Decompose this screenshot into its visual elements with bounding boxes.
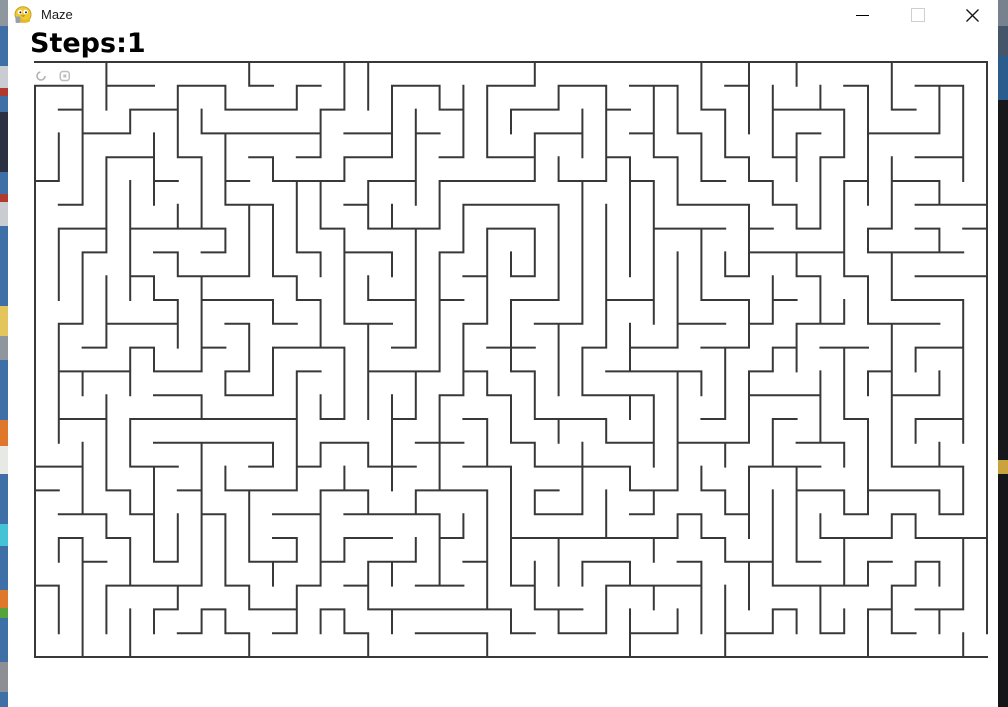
desktop-strip-segment xyxy=(998,460,1008,474)
desktop-strip-segment xyxy=(0,112,8,172)
desktop-strip-segment xyxy=(0,692,8,707)
desktop-strip-segment xyxy=(0,194,8,202)
desktop-strip-segment xyxy=(0,66,8,88)
desktop-strip-segment xyxy=(0,662,8,692)
desktop-strip-segment xyxy=(998,0,1008,26)
desktop-strip-segment xyxy=(0,524,8,546)
desktop-right-strip xyxy=(998,0,1008,707)
desktop-left-strip xyxy=(0,0,8,707)
desktop-strip-segment xyxy=(0,420,8,446)
desktop-strip-segment xyxy=(0,202,8,226)
maze-walls xyxy=(35,62,987,657)
desktop-strip-segment xyxy=(0,306,8,336)
desktop-strip-segment xyxy=(0,608,8,618)
desktop-strip-segment xyxy=(0,590,8,608)
desktop-strip-segment xyxy=(0,96,8,112)
player-sprite xyxy=(37,72,45,80)
marker-sprite xyxy=(60,72,69,81)
desktop-strip-segment xyxy=(0,446,8,474)
desktop-strip-segment xyxy=(998,56,1008,100)
desktop-strip-segment xyxy=(0,226,8,306)
desktop-strip-segment xyxy=(0,618,8,662)
desktop-strip-segment xyxy=(0,0,8,26)
desktop-strip-segment xyxy=(0,172,8,194)
desktop-strip-segment xyxy=(0,88,8,96)
desktop-strip-segment xyxy=(998,474,1008,707)
desktop-strip-segment xyxy=(0,474,8,524)
app-window: Maze Steps:1 xyxy=(8,0,998,707)
desktop-strip-segment xyxy=(0,360,8,420)
desktop-strip-segment xyxy=(0,26,8,66)
desktop-strip-segment xyxy=(0,336,8,360)
desktop-strip-segment xyxy=(998,26,1008,56)
maze-svg[interactable] xyxy=(8,0,998,707)
desktop-strip-segment xyxy=(0,546,8,590)
desktop-strip-segment xyxy=(998,100,1008,460)
